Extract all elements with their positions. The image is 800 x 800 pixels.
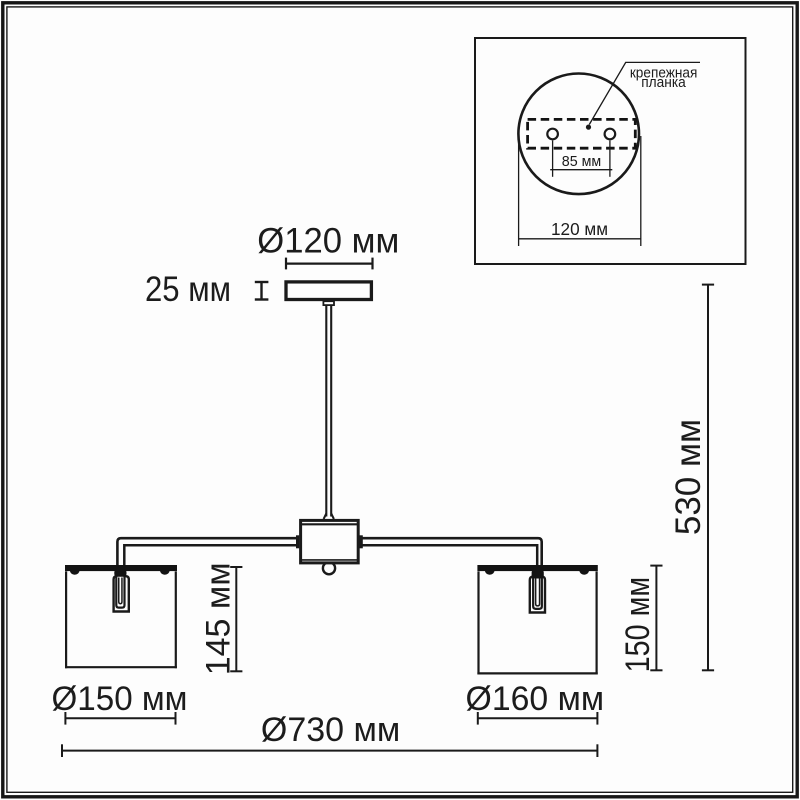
svg-text:Ø150 мм: Ø150 мм — [52, 680, 188, 718]
svg-text:Ø160 мм: Ø160 мм — [466, 680, 605, 718]
svg-text:530 мм: 530 мм — [669, 419, 708, 535]
svg-text:145 мм: 145 мм — [200, 562, 238, 675]
svg-text:150 мм: 150 мм — [619, 577, 657, 673]
svg-text:85 мм: 85 мм — [562, 153, 602, 170]
svg-text:планка: планка — [641, 75, 686, 91]
svg-text:120 мм: 120 мм — [551, 219, 608, 239]
svg-text:Ø120 мм: Ø120 мм — [257, 221, 399, 260]
svg-text:Ø730 мм: Ø730 мм — [261, 711, 400, 749]
svg-text:25 мм: 25 мм — [145, 270, 231, 309]
